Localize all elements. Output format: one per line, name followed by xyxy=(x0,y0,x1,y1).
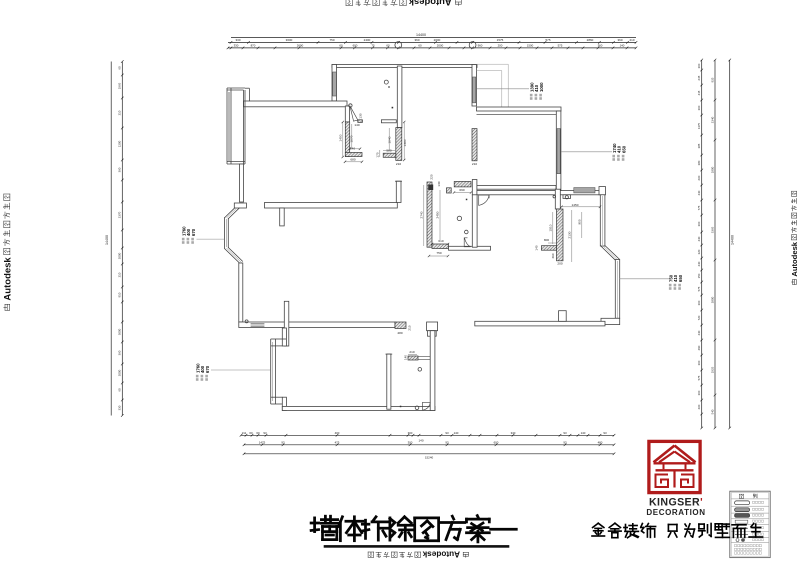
svg-text:60: 60 xyxy=(118,66,122,70)
svg-text:635: 635 xyxy=(697,75,701,80)
svg-text:210: 210 xyxy=(409,350,414,354)
svg-text:480: 480 xyxy=(598,440,603,444)
svg-text:330: 330 xyxy=(118,405,122,410)
svg-text:130: 130 xyxy=(437,181,441,186)
svg-text:540: 540 xyxy=(350,147,355,151)
svg-text:460: 460 xyxy=(551,253,555,258)
svg-text:2690: 2690 xyxy=(297,44,304,48)
svg-text:670: 670 xyxy=(205,365,210,373)
svg-text:320: 320 xyxy=(697,249,701,254)
svg-text:140: 140 xyxy=(581,431,586,435)
svg-text:575: 575 xyxy=(697,286,701,291)
svg-text:720: 720 xyxy=(697,315,701,320)
svg-text:15240: 15240 xyxy=(425,455,434,459)
svg-text:2130: 2130 xyxy=(568,231,572,238)
svg-text:210: 210 xyxy=(118,272,122,277)
svg-text:475: 475 xyxy=(335,440,340,444)
svg-text:960: 960 xyxy=(478,44,483,48)
svg-text:330: 330 xyxy=(234,44,239,48)
svg-text:650: 650 xyxy=(621,145,626,153)
svg-text:1475: 1475 xyxy=(259,440,266,444)
svg-text:300: 300 xyxy=(697,63,701,68)
svg-text:2000: 2000 xyxy=(437,44,444,48)
svg-text:240: 240 xyxy=(697,190,701,195)
svg-text:220: 220 xyxy=(430,174,434,179)
svg-text:14400: 14400 xyxy=(416,33,426,37)
svg-text:Autodesk: Autodesk xyxy=(408,0,452,8)
svg-text:870: 870 xyxy=(251,44,256,48)
svg-text:140: 140 xyxy=(620,44,625,48)
svg-text:140: 140 xyxy=(404,355,408,360)
svg-text:575: 575 xyxy=(697,375,701,380)
svg-text:DECORATION: DECORATION xyxy=(646,508,705,517)
svg-text:14400: 14400 xyxy=(730,235,734,245)
svg-text:2000: 2000 xyxy=(118,252,122,259)
svg-text:93: 93 xyxy=(563,431,567,435)
svg-text:2740: 2740 xyxy=(420,211,424,218)
svg-text:610: 610 xyxy=(438,239,443,243)
svg-text:1040: 1040 xyxy=(388,136,392,143)
svg-text:60: 60 xyxy=(386,44,390,48)
svg-text:1925: 1925 xyxy=(710,366,714,373)
svg-text:3365: 3365 xyxy=(710,226,714,233)
svg-text:KINGSER': KINGSER' xyxy=(649,497,703,509)
svg-text:580: 580 xyxy=(386,149,391,153)
svg-text:2370: 2370 xyxy=(118,211,122,218)
svg-text:2340: 2340 xyxy=(710,116,714,123)
svg-text:660: 660 xyxy=(697,175,701,180)
svg-text:60: 60 xyxy=(339,44,343,48)
svg-text:93: 93 xyxy=(263,431,267,435)
svg-text:140: 140 xyxy=(354,123,359,127)
svg-text:3600: 3600 xyxy=(286,38,293,42)
svg-text:210: 210 xyxy=(118,110,122,115)
svg-text:1575: 1575 xyxy=(497,38,504,42)
svg-text:1070: 1070 xyxy=(350,135,354,142)
svg-text:340: 340 xyxy=(511,431,516,435)
svg-text:2000: 2000 xyxy=(434,38,441,42)
svg-text:575: 575 xyxy=(545,38,550,42)
svg-text:600: 600 xyxy=(494,440,499,444)
svg-text:380: 380 xyxy=(697,160,701,165)
svg-text:360: 360 xyxy=(598,44,603,48)
svg-text:2860: 2860 xyxy=(587,38,594,42)
svg-text:1500: 1500 xyxy=(527,44,534,48)
svg-text:1450: 1450 xyxy=(572,203,579,207)
svg-text:290: 290 xyxy=(697,345,701,350)
svg-text:93: 93 xyxy=(445,440,449,444)
svg-text:93: 93 xyxy=(281,440,285,444)
svg-text:680: 680 xyxy=(350,158,355,162)
svg-text:575: 575 xyxy=(558,44,563,48)
svg-text:415: 415 xyxy=(697,90,701,95)
svg-text:240: 240 xyxy=(697,330,701,335)
svg-text:360: 360 xyxy=(414,38,419,42)
svg-text:360: 360 xyxy=(617,38,622,42)
svg-text:1300: 1300 xyxy=(403,139,407,146)
svg-text:1375: 1375 xyxy=(697,122,701,129)
svg-text:300: 300 xyxy=(697,105,701,110)
svg-text:300: 300 xyxy=(697,360,701,365)
svg-text:210: 210 xyxy=(472,162,477,166)
svg-text:140: 140 xyxy=(454,431,459,435)
svg-text:400: 400 xyxy=(335,431,340,435)
svg-text:2450: 2450 xyxy=(436,211,440,218)
svg-text:1000: 1000 xyxy=(539,82,544,92)
svg-text:670: 670 xyxy=(191,228,196,236)
svg-text:60: 60 xyxy=(249,431,253,435)
svg-text:200: 200 xyxy=(557,262,562,266)
svg-text:Autodesk: Autodesk xyxy=(3,257,14,301)
svg-text:75: 75 xyxy=(371,44,375,48)
svg-text:360: 360 xyxy=(118,350,122,355)
svg-text:210: 210 xyxy=(396,162,401,166)
svg-text:1400: 1400 xyxy=(339,134,343,141)
svg-text:330: 330 xyxy=(235,38,240,42)
svg-text:300: 300 xyxy=(408,440,413,444)
svg-text:300: 300 xyxy=(697,221,701,226)
svg-text:3000: 3000 xyxy=(118,328,122,335)
svg-text:170: 170 xyxy=(376,152,380,157)
svg-text:2000: 2000 xyxy=(118,369,122,376)
svg-text:60: 60 xyxy=(256,431,260,435)
svg-text:240: 240 xyxy=(697,236,701,241)
svg-text:650: 650 xyxy=(678,274,683,282)
svg-text:Autodesk: Autodesk xyxy=(422,550,460,559)
svg-text:800: 800 xyxy=(544,238,549,242)
svg-text:2800: 2800 xyxy=(710,296,714,303)
svg-text:140: 140 xyxy=(535,245,539,250)
svg-text:540: 540 xyxy=(710,409,714,414)
svg-text:1510: 1510 xyxy=(549,224,553,231)
svg-text:360: 360 xyxy=(118,167,122,172)
svg-text:240: 240 xyxy=(697,261,701,266)
svg-text:300: 300 xyxy=(697,390,701,395)
svg-text:300: 300 xyxy=(697,300,701,305)
svg-text:150: 150 xyxy=(697,273,701,278)
svg-text:60: 60 xyxy=(118,388,122,392)
svg-text:480: 480 xyxy=(397,331,402,335)
svg-text:210: 210 xyxy=(629,38,634,42)
svg-text:1965: 1965 xyxy=(118,82,122,89)
svg-text:60: 60 xyxy=(418,44,422,48)
svg-text:93: 93 xyxy=(603,431,607,435)
svg-text:260: 260 xyxy=(697,404,701,409)
svg-text:130: 130 xyxy=(359,113,363,118)
svg-text:2400: 2400 xyxy=(364,38,371,42)
svg-text:93: 93 xyxy=(445,431,449,435)
svg-text:385: 385 xyxy=(697,143,701,148)
svg-text:900: 900 xyxy=(578,219,582,224)
svg-text:140: 140 xyxy=(418,439,423,443)
svg-text:750: 750 xyxy=(436,251,441,255)
svg-text:775: 775 xyxy=(697,205,701,210)
svg-text:1200: 1200 xyxy=(118,140,122,147)
svg-text:210: 210 xyxy=(408,325,412,330)
svg-text:750: 750 xyxy=(329,38,334,42)
svg-text:925: 925 xyxy=(710,77,714,82)
svg-text:93: 93 xyxy=(563,440,567,444)
svg-text:Autodesk: Autodesk xyxy=(790,241,799,276)
svg-text:1800: 1800 xyxy=(710,166,714,173)
svg-text:300: 300 xyxy=(408,431,413,435)
svg-text:600: 600 xyxy=(353,44,358,48)
svg-text:200: 200 xyxy=(498,44,503,48)
svg-text:211: 211 xyxy=(242,431,247,435)
svg-text:910: 910 xyxy=(118,292,122,297)
svg-text:14400: 14400 xyxy=(105,235,109,245)
svg-text:690: 690 xyxy=(459,188,464,192)
